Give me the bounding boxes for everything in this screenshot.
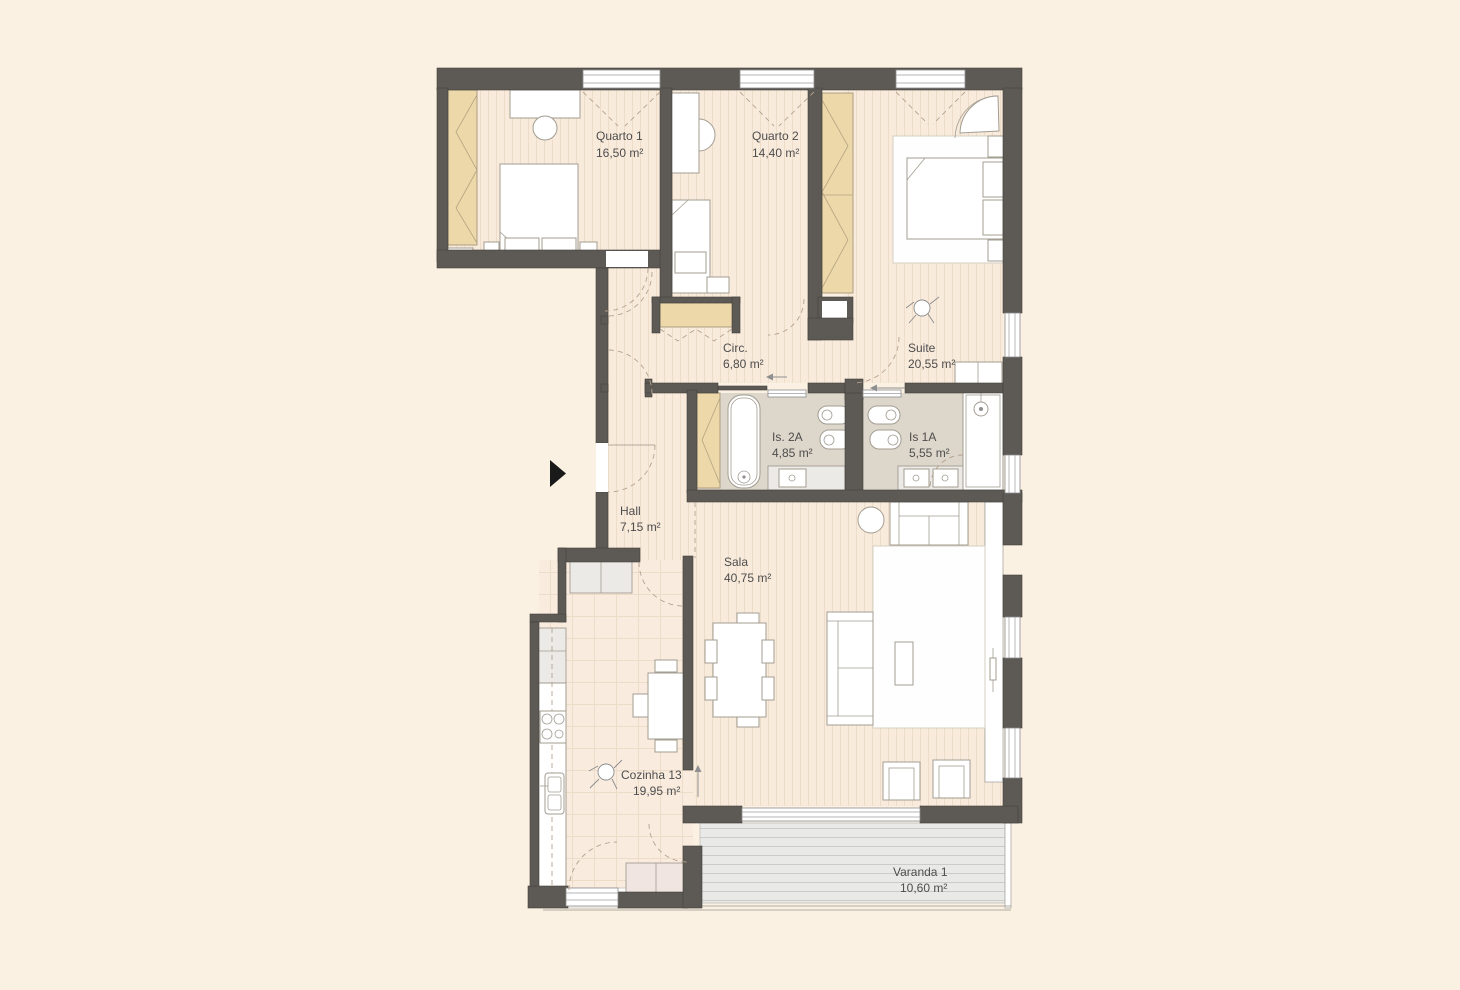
wall-left-quarto1	[437, 88, 448, 262]
quarto1-door-opening	[606, 251, 648, 267]
window-right-is1a	[1005, 455, 1020, 493]
entrance-door-opening	[596, 443, 608, 492]
quarto2-dresser	[671, 93, 699, 173]
quarto1-desk	[510, 90, 580, 118]
suite-nightstand-bottom	[988, 240, 1004, 261]
wall-circ-closet-top	[652, 297, 740, 303]
wall-hall-left-upper	[596, 268, 608, 443]
wall-cozinha-bottom-left	[528, 886, 568, 908]
label-hall-name: Hall	[620, 504, 641, 518]
window-right-sala-2	[1005, 728, 1020, 778]
cozinha-chair-bottom	[655, 740, 677, 752]
sala-dining-chair-2	[705, 677, 717, 700]
is2a-sink	[779, 469, 806, 487]
wall-right-3	[1003, 493, 1022, 545]
label-sala-name: Sala	[724, 555, 748, 569]
window-right-suite	[1005, 313, 1020, 357]
floor-varanda-deck	[700, 823, 1005, 903]
wall-bath-top-thin	[718, 386, 767, 390]
label-suite-area: 20,55 m²	[908, 357, 955, 371]
wall-bath-top-3	[905, 383, 1003, 393]
label-is2a-name: Is. 2A	[772, 430, 803, 444]
cozinha-stove	[540, 711, 566, 743]
label-circ-name: Circ.	[723, 341, 748, 355]
label-is1a-name: Is 1A	[909, 430, 936, 444]
label-is2a-area: 4,85 m²	[772, 446, 813, 460]
suite-pocket-inner	[822, 301, 847, 319]
wall-is2a-left	[687, 390, 697, 493]
door-cozinha-exterior	[566, 888, 618, 906]
wall-bath-divider	[845, 393, 863, 493]
suite-pillow-top	[983, 162, 1003, 197]
wall-suite-entry	[808, 318, 853, 340]
wall-bath-bottom	[687, 490, 1022, 502]
window-top-suite	[896, 70, 965, 88]
wall-cozinha-step-h	[530, 614, 566, 622]
wall-varanda-left	[683, 846, 702, 908]
is1a-toilet	[868, 406, 900, 424]
quarto1-furniture	[444, 90, 597, 262]
cozinha-chair-left	[633, 694, 648, 717]
suite-cabinet	[955, 362, 1002, 386]
suite-nightstand-top	[988, 136, 1004, 157]
cozinha-chair-top	[655, 660, 677, 672]
sala-sofa-left	[827, 612, 873, 725]
label-suite-name: Suite	[908, 341, 935, 355]
is2a-closet	[697, 393, 720, 488]
sala-dining-chair-3	[762, 640, 774, 663]
wall-sala-bottom-left	[683, 806, 742, 823]
sala-glazing-sill	[985, 502, 1003, 782]
is1a-sink-right	[933, 469, 958, 487]
wall-cozinha-sala-divider	[683, 556, 693, 770]
label-quarto2-name: Quarto 2	[752, 129, 799, 143]
label-quarto1-area: 16,50 m²	[596, 146, 643, 160]
wall-right-1	[1003, 88, 1022, 313]
sliding-door-is1a	[863, 390, 901, 397]
suite-pillow-bottom	[983, 200, 1003, 235]
wall-hall-nub-1	[601, 316, 608, 324]
label-is1a-area: 5,55 m²	[909, 446, 950, 460]
sliding-door-is2a	[768, 390, 806, 397]
window-right-sala-1	[1005, 617, 1020, 658]
label-quarto2-area: 14,40 m²	[752, 146, 799, 160]
quarto1-wardrobe	[448, 90, 477, 245]
label-quarto1-name: Quarto 1	[596, 129, 643, 143]
quarto2-pillow	[675, 252, 706, 273]
sala-dining-table	[713, 623, 766, 717]
floor-plan-canvas: Quarto 1 16,50 m² Quarto 2 14,40 m² Suit…	[0, 0, 1460, 990]
floor-plan-drawing	[0, 0, 1460, 990]
sala-rug	[873, 546, 985, 728]
sala-dining-chair-4	[762, 677, 774, 700]
label-hall-area: 7,15 m²	[620, 520, 661, 534]
label-cozinha-area: 19,95 m²	[633, 784, 680, 798]
is2a-bathtub-drain-dot	[742, 475, 745, 478]
sala-dining-chair-1	[705, 640, 717, 663]
is1a-shower-head-dot	[979, 407, 983, 411]
window-top-quarto1	[583, 70, 660, 88]
wall-cozinha-left	[530, 622, 539, 890]
quarto2-nightstand	[707, 277, 729, 293]
cozinha-cabinet-bottom	[626, 863, 685, 894]
is2a-bathtub	[728, 395, 760, 488]
quarto2-bed	[672, 200, 710, 293]
window-top-quarto2	[740, 70, 814, 88]
entrance-marker-icon	[550, 460, 566, 487]
label-cozinha-name: Cozinha 13	[621, 768, 682, 782]
wall-circ-closet-right	[732, 297, 740, 333]
wall-cozinha-step-v	[558, 548, 566, 622]
sala-coffee-table	[895, 642, 913, 685]
wall-cozinha-top	[558, 548, 640, 562]
is1a-sink-left	[904, 469, 929, 487]
quarto1-chair	[533, 116, 557, 140]
sala-dining-chair-6	[737, 717, 759, 727]
wall-sala-bottom-right	[920, 806, 1018, 823]
cozinha-table	[648, 673, 685, 739]
label-varanda-name: Varanda 1	[893, 865, 948, 879]
wall-hall-nub-2	[601, 384, 608, 392]
suite-wardrobe	[822, 93, 853, 293]
sliding-door-varanda	[742, 808, 920, 821]
sala-dining-chair-5	[737, 613, 759, 623]
wall-quarto1-quarto2-divider	[660, 88, 672, 300]
label-sala-area: 40,75 m²	[724, 571, 771, 585]
wall-bath-top-1	[645, 383, 718, 393]
label-circ-area: 6,80 m²	[723, 357, 764, 371]
wall-bath-top-2	[808, 383, 845, 393]
wall-right-4	[1003, 658, 1022, 728]
wall-right-2	[1003, 357, 1022, 455]
label-varanda-area: 10,60 m²	[900, 881, 947, 895]
circ-closet-body	[660, 303, 734, 327]
sala-round-table	[858, 507, 884, 533]
wall-right-pillar	[1003, 575, 1022, 617]
is1a-bidet	[870, 430, 901, 449]
wall-cozinha-bottom-right	[618, 892, 688, 908]
wall-circ-closet-left	[652, 297, 660, 333]
